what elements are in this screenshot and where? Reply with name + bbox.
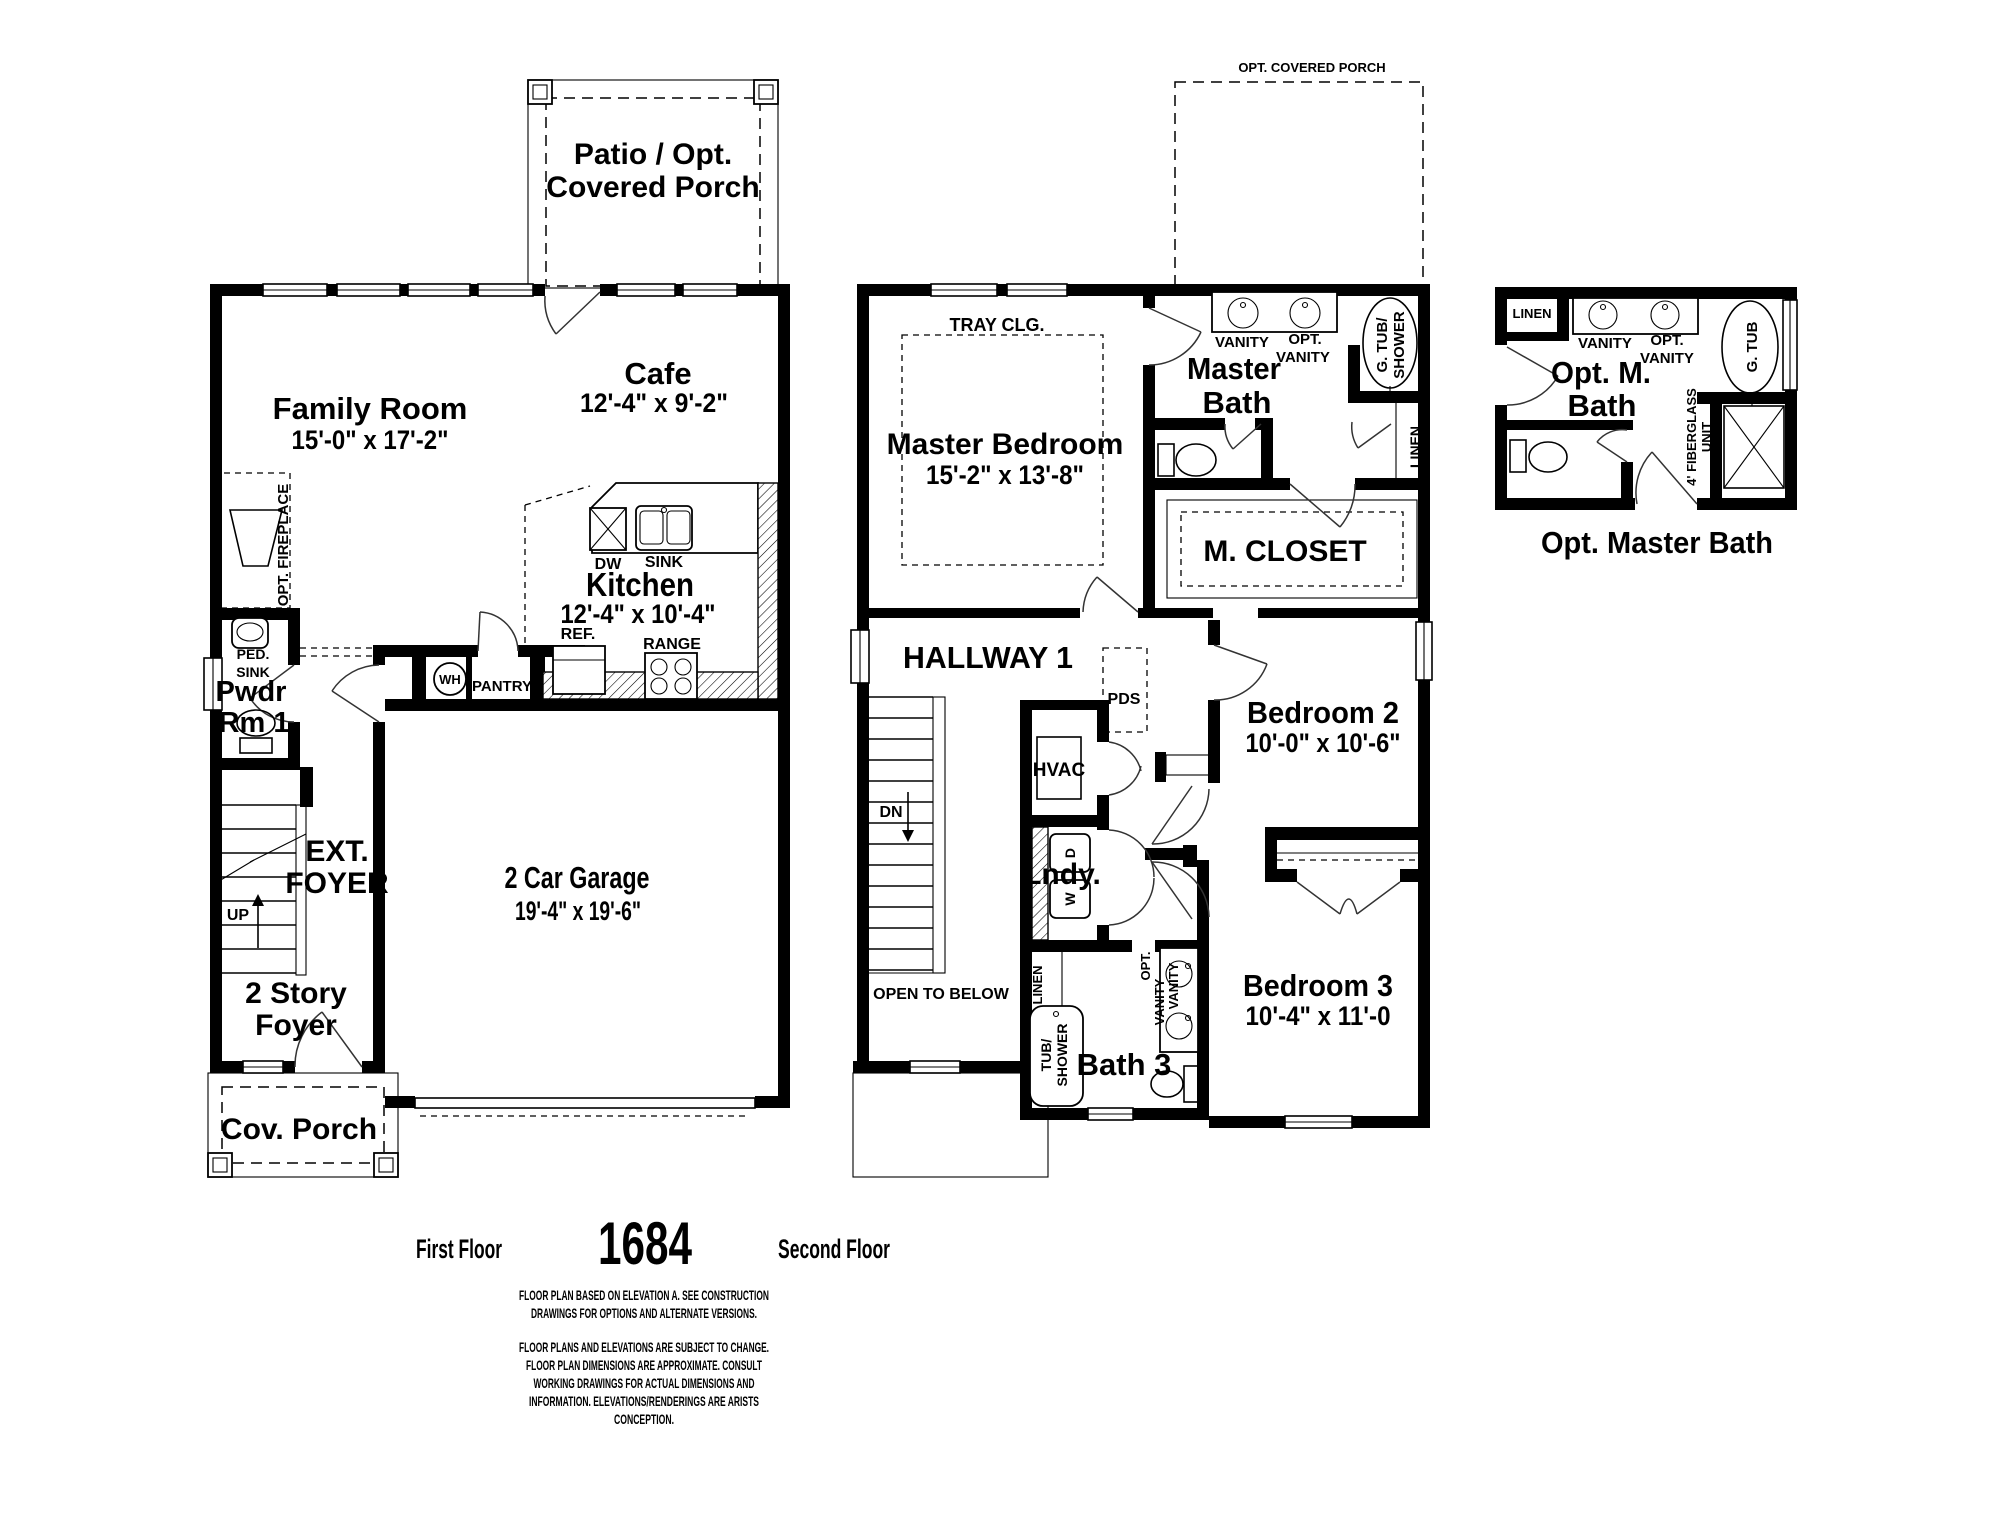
omb-opt-vanity-label: OPT. [1650, 332, 1683, 349]
tray-clg-label: TRAY CLG. [949, 315, 1044, 335]
wh-label: WH [439, 672, 461, 687]
linen-label: LINEN [1407, 426, 1423, 468]
master-bedroom-dims: 15'-2" x 13'-8" [926, 460, 1084, 490]
powder-room: PED. SINK Pwdr Rm 1 [216, 618, 290, 753]
ext-foyer-label-2: FOYER [285, 867, 389, 900]
bath3-linen-label: LINEN [1030, 966, 1045, 1005]
g-tub-shower-label-2: SHOWER [1391, 311, 1408, 379]
ped-label: PED. [237, 646, 270, 662]
omb-name-label-2: Bath [1568, 388, 1637, 423]
bath3-opt-label: OPT. [1138, 952, 1153, 981]
stairs-second-floor: DN [869, 697, 945, 973]
open-to-below-label: OPEN TO BELOW [873, 986, 1010, 1003]
omb-linen-label: LINEN [1513, 306, 1552, 321]
bedroom2-label: Bedroom 2 [1247, 695, 1399, 730]
ext-foyer-label: EXT. [305, 835, 368, 868]
master-bath-label-2: Bath [1203, 385, 1272, 420]
disclaimer-2-line-3: WORKING DRAWINGS FOR ACTUAL DIMENSIONS A… [534, 1375, 755, 1391]
omb-fiberglass-label: 4' FIBERGLASS [1684, 388, 1699, 486]
bath3-vanity-label: VANITY [1152, 978, 1167, 1025]
omb-caption: Opt. Master Bath [1541, 525, 1773, 560]
omb-vanity-label: VANITY [1578, 335, 1632, 352]
master-bedroom-label: Master Bedroom [887, 428, 1124, 461]
fireplace: OPT. FIREPLACE [213, 473, 292, 608]
tub-shower-label-2: SHOWER [1054, 1024, 1070, 1087]
second-floor-plan: OPT. COVERED PORCH [851, 60, 1432, 1177]
omb-g-tub-label: G. TUB [1744, 321, 1761, 372]
disclaimer-2-line-2: FLOOR PLAN DIMENSIONS ARE APPROXIMATE. C… [526, 1357, 762, 1373]
kitchen-dims: 12'-4" x 10'-4" [561, 599, 716, 629]
disclaimer-1-line-2: DRAWINGS FOR OPTIONS AND ALTERNATE VERSI… [531, 1305, 757, 1321]
opt-fireplace-label: OPT. FIREPLACE [275, 484, 292, 607]
tub-shower-label: TUB/ [1038, 1039, 1054, 1072]
vanity-label: VANITY [1215, 334, 1269, 351]
first-floor-plan: Patio / Opt. Covered Porch Cov. Porch [204, 80, 790, 1177]
patio-covered-porch: Patio / Opt. Covered Porch [528, 80, 778, 288]
floor-plan-drawing: Patio / Opt. Covered Porch Cov. Porch [0, 0, 2000, 1531]
pwdr-label: Pwdr [216, 676, 287, 708]
pantry-label: PANTRY [472, 678, 532, 695]
kitchen-label: Kitchen [586, 566, 694, 603]
garage-dims: 19'-4" x 19'-6" [515, 896, 641, 926]
range-label: RANGE [643, 636, 701, 653]
plan-number: 1684 [598, 1210, 692, 1277]
pwdr-label-2: Rm 1 [219, 707, 290, 739]
up-label: UP [227, 907, 250, 924]
garage-label: 2 Car Garage [505, 860, 650, 895]
g-tub-shower-label: G. TUB/ [1374, 317, 1391, 373]
two-story-foyer-label-2: Foyer [255, 1009, 337, 1042]
family-room-label: Family Room [273, 391, 468, 426]
second-floor-caption: Second Floor [778, 1234, 890, 1264]
bath3-label: Bath 3 [1077, 1047, 1172, 1082]
bedroom2-dims: 10'-0" x 10'-6" [1246, 728, 1401, 758]
hallway-label: HALLWAY 1 [903, 640, 1073, 675]
patio-label-2: Covered Porch [546, 171, 759, 204]
m-closet-label: M. CLOSET [1203, 535, 1366, 568]
floor-plan-page: Patio / Opt. Covered Porch Cov. Porch [0, 0, 2000, 1531]
opt-covered-porch: OPT. COVERED PORCH [1175, 60, 1423, 287]
garage-door [415, 1098, 755, 1116]
disclaimer-2-line-5: CONCEPTION. [614, 1411, 674, 1427]
hvac-label: HVAC [1033, 760, 1086, 781]
dryer-label: D [1062, 848, 1078, 858]
master-bath-label: Master [1187, 351, 1281, 386]
opt-vanity-label-2: VANITY [1276, 349, 1330, 366]
lndy-label: Lndy. [1023, 858, 1101, 891]
cafe-dims: 12'-4" x 9'-2" [580, 388, 728, 418]
cafe-label: Cafe [624, 356, 691, 391]
family-room-dims: 15'-0" x 17'-2" [292, 425, 449, 455]
pds-box [1103, 648, 1147, 732]
footer: First Floor 1684 Second Floor FLOOR PLAN… [416, 1210, 890, 1427]
pds-label: PDS [1108, 691, 1141, 708]
opt-vanity-label: OPT. [1288, 331, 1321, 348]
disclaimer-2-line-4: INFORMATION. ELEVATIONS/RENDERINGS ARE A… [529, 1393, 759, 1409]
disclaimer-1-line-1: FLOOR PLAN BASED ON ELEVATION A. SEE CON… [519, 1287, 769, 1303]
opt-covered-porch-label: OPT. COVERED PORCH [1238, 60, 1385, 75]
omb-name-label: Opt. M. [1551, 355, 1651, 390]
bedroom3-dims: 10'-4" x 11'-0 [1246, 1001, 1391, 1031]
cov-porch-label: Cov. Porch [221, 1113, 377, 1146]
disclaimer-2-line-1: FLOOR PLANS AND ELEVATIONS ARE SUBJECT T… [519, 1339, 769, 1355]
first-floor-caption: First Floor [416, 1234, 502, 1264]
omb-fiberglass-label-2: UNIT [1699, 422, 1714, 452]
bedroom3-label: Bedroom 3 [1243, 968, 1393, 1003]
washer-label: W [1062, 892, 1078, 906]
two-story-foyer-label: 2 Story [245, 977, 347, 1010]
covered-porch: Cov. Porch [208, 1073, 398, 1177]
patio-label: Patio / Opt. [574, 138, 732, 171]
dn-label: DN [879, 804, 902, 821]
opt-master-bath-plan: LINEN VANITY OPT. VANITY Opt. M. Bath G.… [1495, 287, 1797, 560]
bath3-vanity-label-2: VANITY [1166, 962, 1181, 1009]
roof-outline-below [853, 1073, 1048, 1177]
